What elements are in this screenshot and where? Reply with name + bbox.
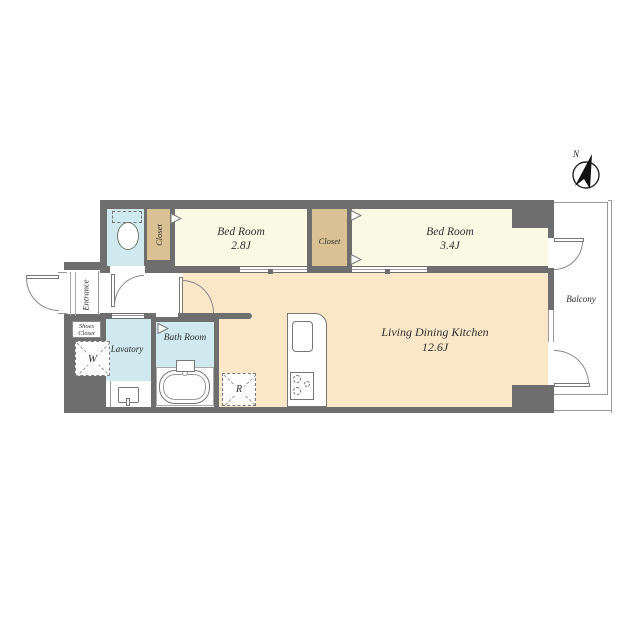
- bedroom2-name: Bed Room: [426, 226, 474, 238]
- bath-faucet-deck: [176, 360, 195, 372]
- bathroom-label: Bath Room: [156, 333, 214, 343]
- bedroom1-area: 2.8J: [231, 240, 250, 252]
- closet1-label: Closet: [153, 224, 163, 246]
- entrance-label: Entrance: [81, 279, 91, 310]
- stove-burner-2: [293, 387, 301, 395]
- balcony-label: Balcony: [554, 294, 608, 304]
- closet2-door-arrow-bottom-icon: [350, 254, 362, 265]
- stove-burner-1: [293, 375, 301, 383]
- refrigerator-label: R: [234, 384, 244, 395]
- wall-bedrooms-bottom: [100, 266, 548, 273]
- wall-top: [100, 200, 554, 209]
- bedroom2-area: 3.4J: [440, 240, 459, 252]
- closet1-door-arrow-icon: [170, 213, 182, 224]
- bedroom2-label: Bed Room 3.4J: [352, 225, 548, 253]
- entrance-door-swing: [26, 278, 59, 311]
- bedroom1-label: Bed Room 2.8J: [175, 225, 307, 253]
- ldk-area: 12.6J: [422, 340, 448, 354]
- north-compass-icon: N: [566, 144, 612, 198]
- lavatory-label: Lavatory: [103, 344, 151, 354]
- toilet-bowl-icon: [117, 222, 139, 250]
- shoes-closet-label: Shoes Closet: [72, 321, 101, 338]
- entrance-label-wrap: Entrance: [76, 274, 96, 316]
- wall-entrance-top: [64, 262, 107, 270]
- ldk-floor-upper: [183, 273, 548, 313]
- sliding-door-stop-1: [268, 269, 273, 274]
- balcony-railing-bottom: [554, 410, 612, 411]
- lavatory-door: [112, 314, 144, 318]
- toilet-door-opening: [110, 266, 145, 273]
- wall-bottomright-block: [512, 385, 554, 413]
- closet2-label: Closet: [312, 236, 347, 246]
- closet1-label-wrap: Closet: [147, 209, 170, 260]
- closet2-door-arrow-top-icon: [350, 210, 362, 221]
- entrance-door-opening: [58, 272, 67, 314]
- north-label: N: [572, 149, 580, 159]
- balcony-railing-top-stub: [608, 200, 612, 201]
- lavatory-sink-tap: [126, 398, 130, 406]
- wall-bath-ldk: [214, 319, 219, 407]
- floor-plan: W R Bed Room 2.8J Bed Room 3.4J Living D…: [0, 0, 640, 640]
- bedroom1-sliding-door: [240, 267, 307, 272]
- refrigerator-box: R: [222, 373, 256, 406]
- entrance-step-line: [98, 271, 99, 315]
- balcony-railing-vertical: [611, 200, 612, 413]
- bathtub-inner-line: [163, 374, 206, 400]
- washing-machine-label: W: [86, 353, 99, 365]
- ldk-label: Living Dining Kitchen 12.6J: [287, 325, 583, 355]
- sliding-door-stop-2: [385, 269, 390, 274]
- bedroom1-name: Bed Room: [217, 226, 265, 238]
- wall-bottom: [64, 407, 517, 413]
- ldk-name: Living Dining Kitchen: [381, 325, 488, 339]
- stove-burner-3: [304, 381, 310, 387]
- wall-bath-top: [156, 317, 214, 322]
